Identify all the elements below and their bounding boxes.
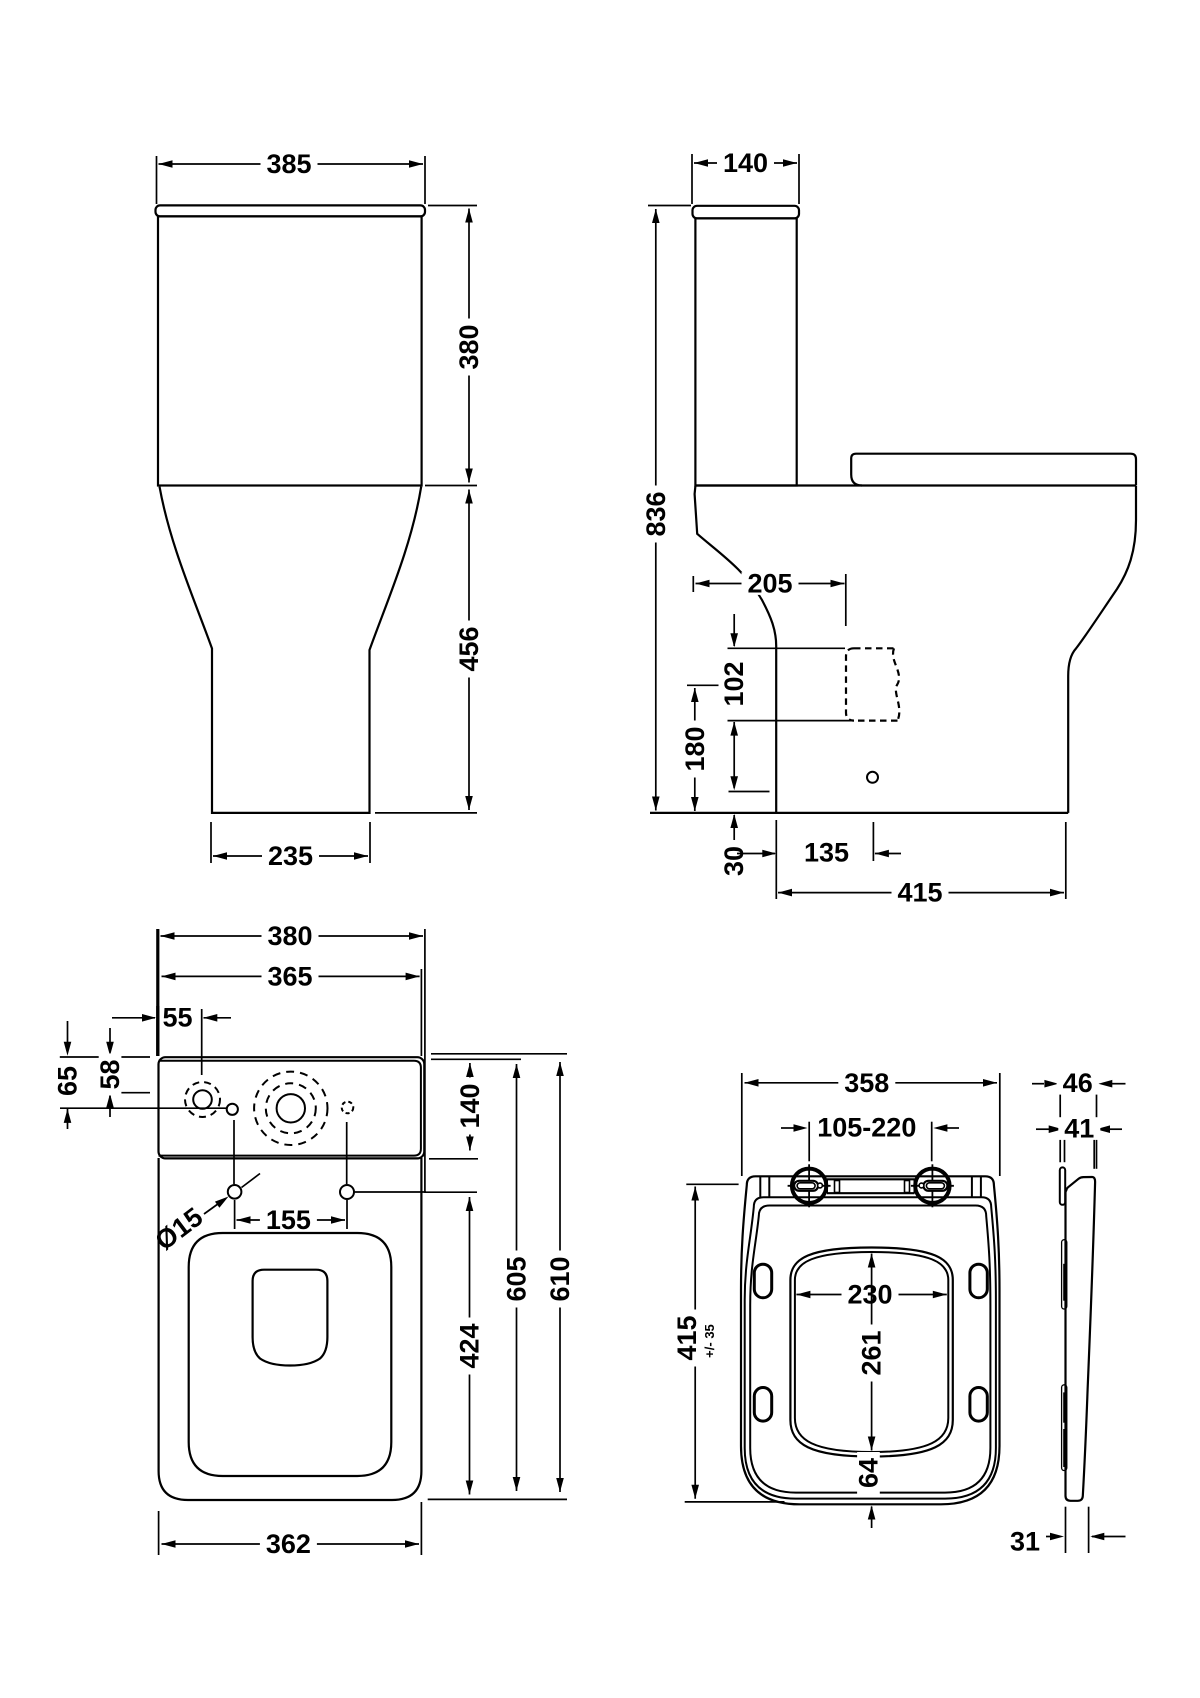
svg-text:415: 415 bbox=[897, 878, 942, 908]
svg-text:140: 140 bbox=[723, 148, 768, 178]
svg-text:380: 380 bbox=[454, 324, 484, 369]
svg-text:415: 415 bbox=[672, 1315, 702, 1360]
svg-text:58: 58 bbox=[95, 1059, 125, 1089]
svg-text:365: 365 bbox=[267, 961, 312, 991]
svg-text:205: 205 bbox=[747, 569, 792, 599]
svg-text:155: 155 bbox=[266, 1205, 311, 1235]
svg-text:456: 456 bbox=[454, 626, 484, 671]
svg-text:105-220: 105-220 bbox=[817, 1112, 916, 1142]
svg-text:358: 358 bbox=[844, 1068, 889, 1098]
svg-text:55: 55 bbox=[162, 1002, 192, 1032]
svg-text:230: 230 bbox=[847, 1280, 892, 1310]
svg-text:140: 140 bbox=[455, 1083, 485, 1128]
svg-text:31: 31 bbox=[1010, 1527, 1040, 1557]
svg-text:41: 41 bbox=[1064, 1114, 1094, 1144]
svg-text:180: 180 bbox=[680, 726, 710, 771]
svg-text:65: 65 bbox=[53, 1066, 83, 1096]
svg-text:424: 424 bbox=[455, 1323, 485, 1368]
svg-text:836: 836 bbox=[641, 491, 671, 536]
svg-text:46: 46 bbox=[1063, 1068, 1093, 1098]
svg-text:380: 380 bbox=[267, 921, 312, 951]
svg-text:30: 30 bbox=[719, 846, 749, 876]
svg-text:+/- 35: +/- 35 bbox=[702, 1324, 717, 1358]
svg-text:362: 362 bbox=[266, 1529, 311, 1559]
svg-text:261: 261 bbox=[857, 1330, 887, 1375]
svg-text:605: 605 bbox=[502, 1256, 532, 1301]
svg-text:385: 385 bbox=[266, 149, 311, 179]
svg-text:64: 64 bbox=[853, 1458, 883, 1488]
svg-text:135: 135 bbox=[804, 838, 849, 868]
svg-text:235: 235 bbox=[268, 841, 313, 871]
svg-text:102: 102 bbox=[719, 661, 749, 706]
svg-text:610: 610 bbox=[545, 1256, 575, 1301]
